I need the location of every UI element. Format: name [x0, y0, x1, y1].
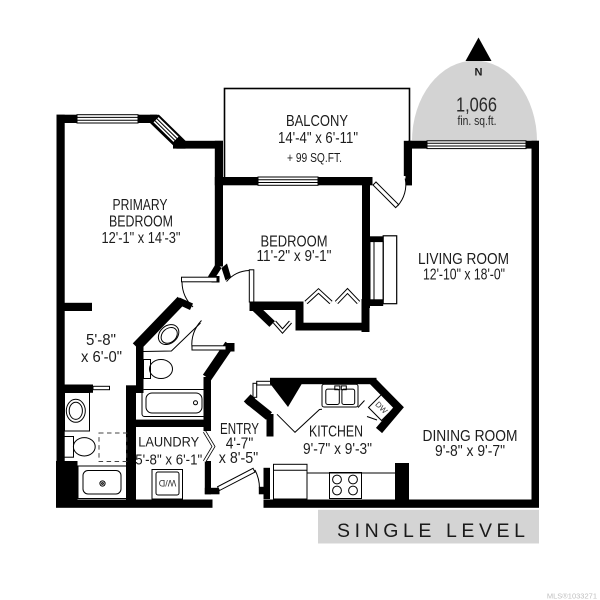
svg-text:12'-10" x 18'-0": 12'-10" x 18'-0"	[423, 267, 505, 284]
svg-text:9'-8" x 9'-7": 9'-8" x 9'-7"	[435, 443, 505, 460]
svg-text:5'-8" x 6'-1": 5'-8" x 6'-1"	[135, 453, 202, 469]
svg-text:SINGLE LEVEL: SINGLE LEVEL	[337, 520, 525, 542]
svg-text:LAUNDRY: LAUNDRY	[138, 434, 200, 450]
svg-text:KITCHEN: KITCHEN	[309, 424, 363, 441]
svg-text:+ 99 SQ.FT.: + 99 SQ.FT.	[287, 150, 342, 165]
svg-text:14'-4" x 6'-11": 14'-4" x 6'-11"	[278, 130, 358, 147]
svg-text:BEDROOM: BEDROOM	[109, 214, 173, 231]
svg-text:9'-7" x 9'-3": 9'-7" x 9'-3"	[303, 441, 372, 458]
svg-text:5'-8": 5'-8"	[86, 332, 116, 349]
svg-text:LIVING ROOM: LIVING ROOM	[418, 251, 509, 268]
svg-text:N: N	[475, 67, 483, 79]
svg-text:x 6'-0": x 6'-0"	[81, 349, 122, 366]
svg-text:fin. sq.ft.: fin. sq.ft.	[458, 114, 497, 128]
svg-text:MLS®1033271: MLS®1033271	[547, 592, 597, 600]
svg-text:W/D: W/D	[158, 478, 176, 488]
svg-text:x 8'-5": x 8'-5"	[219, 450, 259, 467]
svg-text:BALCONY: BALCONY	[286, 113, 348, 130]
svg-text:PRIMARY: PRIMARY	[113, 197, 168, 214]
svg-text:12'-1" x 14'-3": 12'-1" x 14'-3"	[102, 230, 181, 247]
svg-text:11'-2" x 9'-1": 11'-2" x 9'-1"	[257, 248, 332, 265]
